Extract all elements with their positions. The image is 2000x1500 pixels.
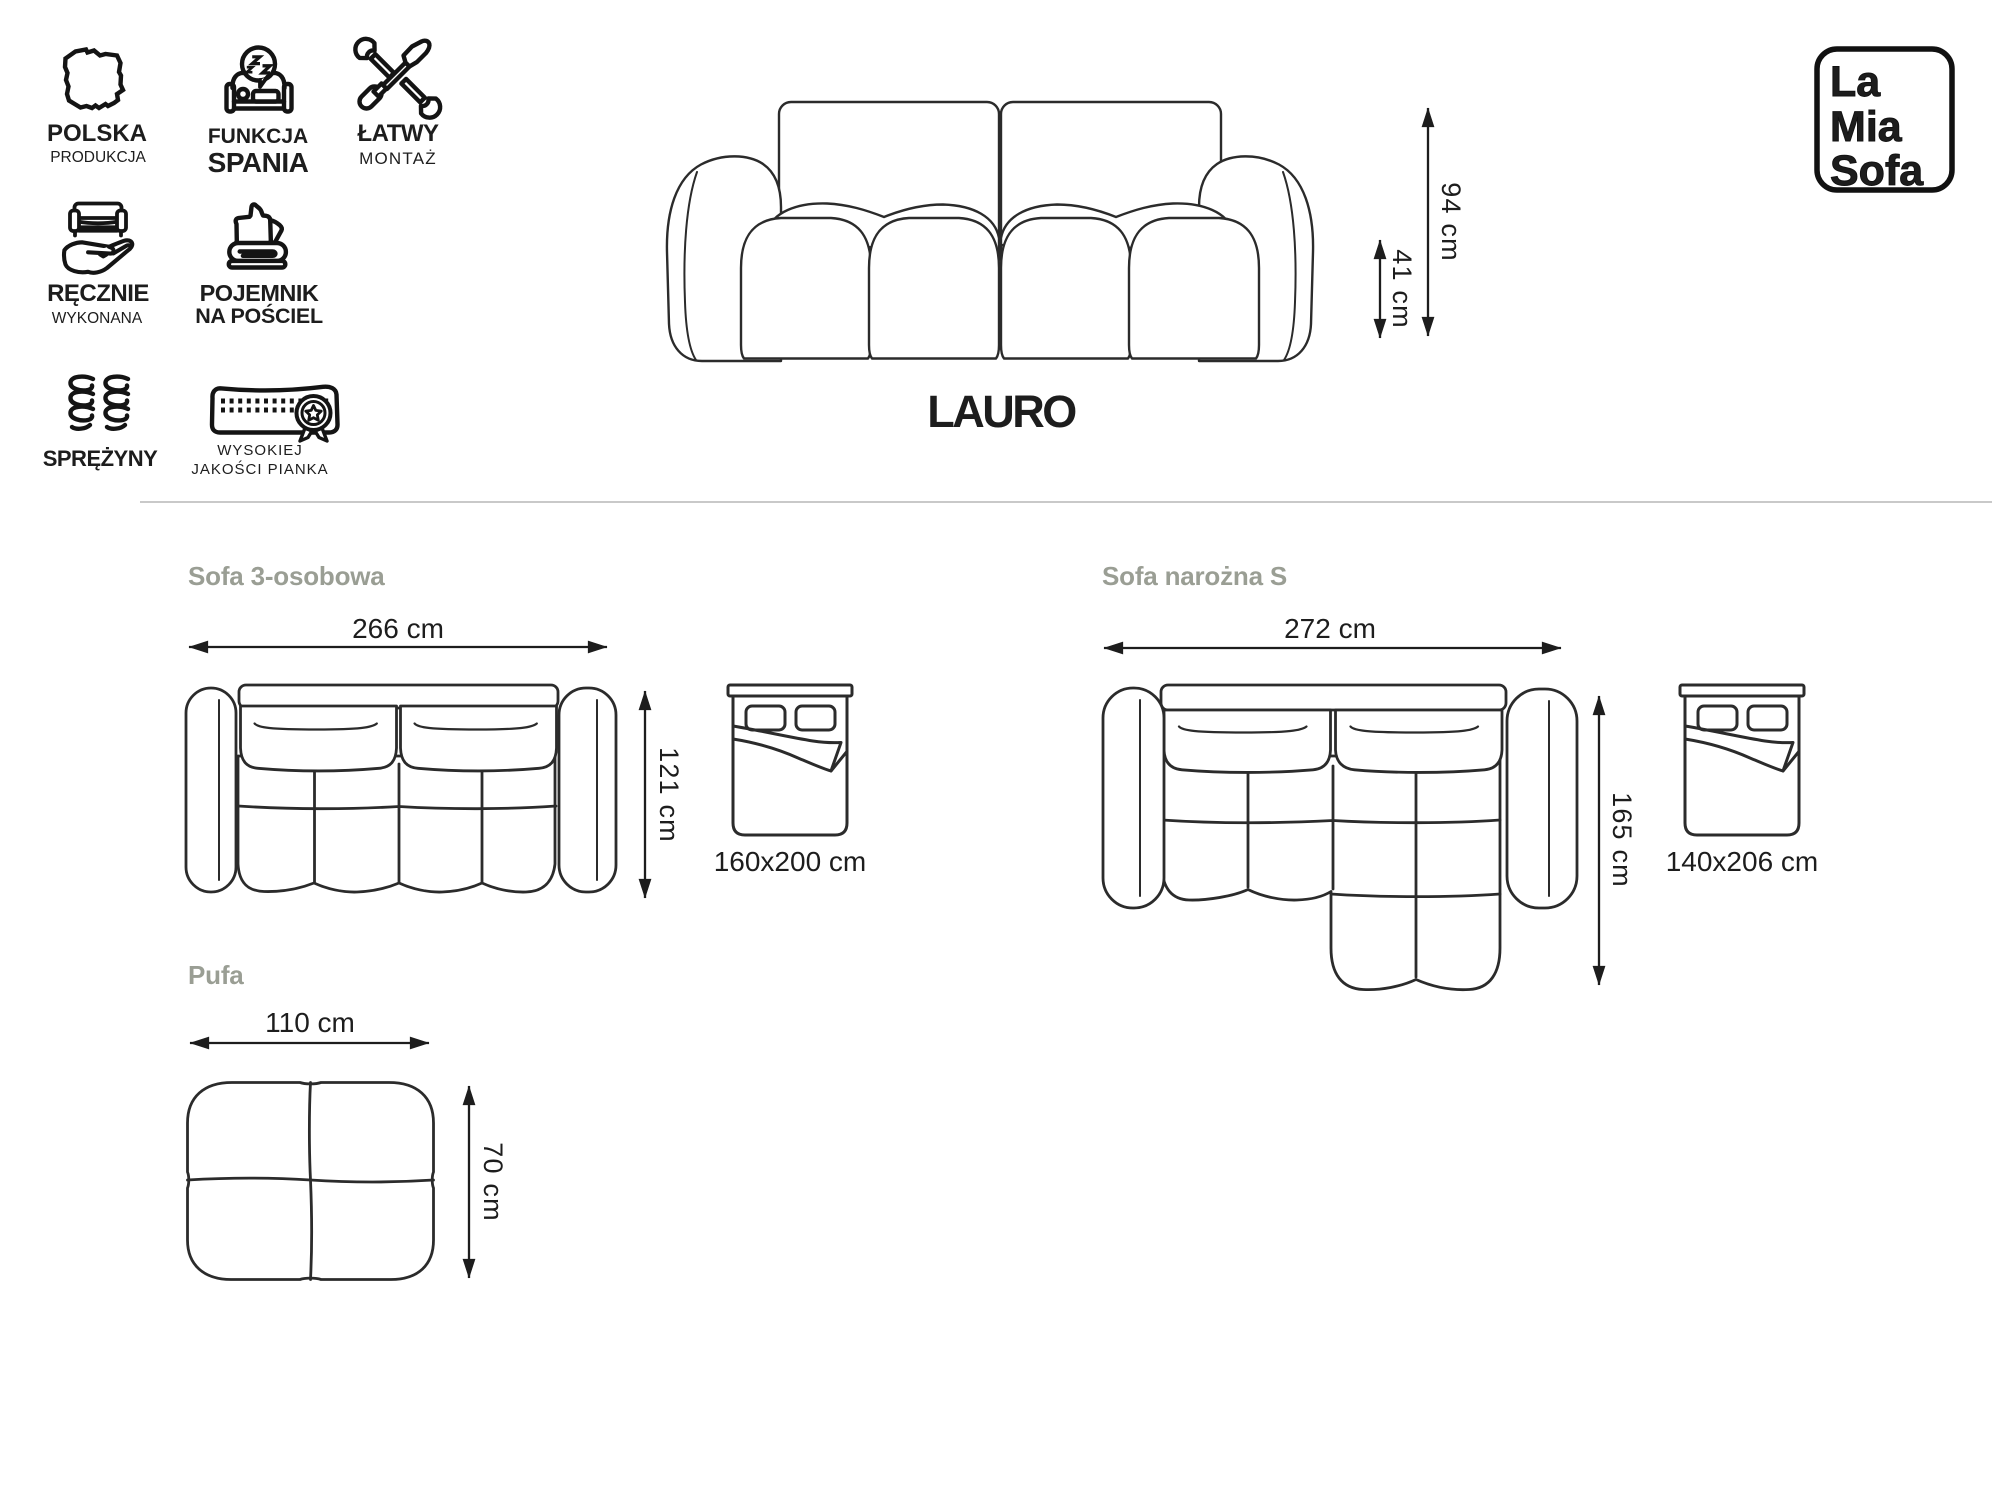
svg-text:JAKOŚCI PIANKA: JAKOŚCI PIANKA [191, 460, 328, 478]
svg-text:WYSOKIEJ: WYSOKIEJ [217, 442, 303, 459]
svg-text:160x200 cm: 160x200 cm [714, 846, 867, 877]
svg-text:ŁATWY: ŁATWY [357, 120, 439, 147]
svg-text:POLSKA: POLSKA [47, 120, 147, 147]
svg-text:272 cm: 272 cm [1284, 613, 1376, 644]
svg-text:165 cm: 165 cm [1607, 792, 1637, 888]
svg-text:Sofa: Sofa [1830, 147, 1924, 195]
svg-text:121 cm: 121 cm [654, 747, 684, 843]
svg-text:LAURO: LAURO [927, 386, 1076, 437]
svg-text:SPANIA: SPANIA [208, 147, 309, 178]
svg-text:NA POŚCIEL: NA POŚCIEL [195, 303, 323, 328]
svg-text:Pufa: Pufa [188, 960, 244, 990]
svg-text:Sofa narożna S: Sofa narożna S [1102, 561, 1287, 591]
svg-text:Mia: Mia [1830, 103, 1903, 151]
svg-text:41 cm: 41 cm [1387, 249, 1417, 329]
svg-text:140x206 cm: 140x206 cm [1666, 846, 1819, 877]
svg-text:Sofa 3-osobowa: Sofa 3-osobowa [188, 561, 385, 591]
svg-text:POJEMNIK: POJEMNIK [200, 280, 319, 306]
svg-text:WYKONANA: WYKONANA [52, 310, 143, 327]
svg-text:SPRĘŻYNY: SPRĘŻYNY [43, 446, 158, 471]
svg-text:RĘCZNIE: RĘCZNIE [47, 280, 149, 307]
svg-text:FUNKCJA: FUNKCJA [208, 125, 308, 148]
svg-text:70 cm: 70 cm [478, 1142, 508, 1222]
svg-text:PRODUKCJA: PRODUKCJA [50, 149, 146, 166]
svg-text:MONTAŻ: MONTAŻ [359, 149, 437, 168]
svg-text:266 cm: 266 cm [352, 613, 444, 644]
svg-text:La: La [1830, 58, 1881, 106]
svg-text:110 cm: 110 cm [265, 1007, 355, 1038]
svg-text:94 cm: 94 cm [1436, 182, 1466, 262]
